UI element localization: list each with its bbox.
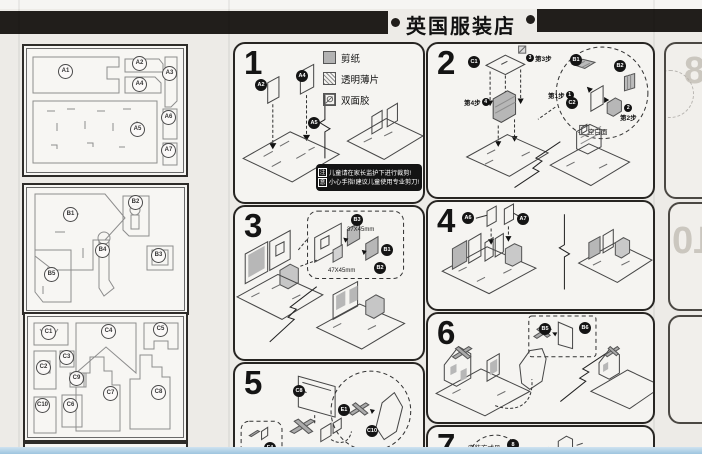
step-2-panel: 2 C1 3 第3步 第4步 4 第1步 1 B1 B2 C2 2 第2步 空白… <box>426 42 655 199</box>
banner-bar-left <box>0 11 388 34</box>
step-number: 6 <box>437 316 455 351</box>
part-badge: C2 <box>566 97 578 109</box>
part-label: C9 <box>69 371 84 386</box>
part-label: A5 <box>130 122 145 137</box>
step-number: 1 <box>244 46 262 81</box>
part-badge: B3 <box>351 214 363 226</box>
step-1-panel: 1 剪纸 透明薄片 双面胶 A2 A4 A5 <box>233 42 425 204</box>
part-badge: C10 <box>366 425 378 437</box>
part-label: A7 <box>161 143 176 158</box>
part-badge: B1 <box>570 54 582 66</box>
part-label: C2 <box>36 360 51 375</box>
folded-page-panel-bottom <box>668 315 702 424</box>
step-dot: 3 <box>526 54 534 62</box>
part-badge: B2 <box>614 60 626 72</box>
double-sided-tape-icon <box>323 93 336 106</box>
step-6-panel: 6 B5 B6 <box>426 312 655 424</box>
part-badge: A4 <box>296 70 308 82</box>
banner-dot-left <box>391 18 400 27</box>
step-text: 第1步 <box>548 90 565 100</box>
legend: 剪纸 透明薄片 双面胶 <box>323 47 379 110</box>
part-badge: B2 <box>374 262 386 274</box>
step-dot: 4 <box>482 98 490 106</box>
step-4-panel: 4 A6 A7 <box>426 200 655 311</box>
warning-tag: 注 意 <box>318 168 327 187</box>
step-3-panel: 3 B3 37X45mm B1 B2 47X45mm <box>233 205 425 361</box>
legend-row-transparent-film: 透明薄片 <box>323 68 379 89</box>
legend-row-double-sided-tape: 双面胶 <box>323 89 379 110</box>
part-badge: A5 <box>308 117 320 129</box>
step-5-panel: 5 C8 E1 C10 F4 <box>233 362 425 454</box>
page-title: 英国服装店 <box>406 10 516 39</box>
ghost-page-number: 8 <box>684 50 702 93</box>
parts-sheet-a: A1 A2 A3 A4 A5 A6 A7 <box>22 44 188 177</box>
legend-label: 剪纸 <box>341 51 360 65</box>
step-annotation: 第4步 4 <box>464 97 490 107</box>
parts-sheet-b: B1 B2 B3 B4 B5 <box>22 183 189 315</box>
step-annotation: 2 第2步 <box>620 104 637 122</box>
part-label: A3 <box>162 66 177 81</box>
instruction-sheet-photo: 英国服装店 A1 A2 A3 A4 A5 A6 A7 <box>0 0 702 454</box>
step-text: 第3步 <box>535 53 552 63</box>
part-label: C10 <box>35 398 50 413</box>
part-label: B3 <box>151 248 166 263</box>
part-label: B1 <box>63 207 78 222</box>
part-label: C5 <box>153 322 168 337</box>
part-label: B4 <box>95 243 110 258</box>
photo-bottom-edge <box>0 447 702 454</box>
sheet-a-part-outlines <box>27 49 183 172</box>
cut-paper-icon <box>323 51 336 64</box>
part-badge: A6 <box>462 212 474 224</box>
part-label: A2 <box>132 56 147 71</box>
part-label: B5 <box>44 267 59 282</box>
transparent-film-icon <box>323 72 336 85</box>
part-badge: C1 <box>468 56 480 68</box>
part-badge: C8 <box>293 385 305 397</box>
step-3-diagram <box>235 207 423 358</box>
folded-page-panel-8: 8 <box>664 42 702 199</box>
part-badge: B1 <box>381 244 393 256</box>
part-badge: E1 <box>338 404 350 416</box>
part-label: C3 <box>59 350 74 365</box>
step-number: 2 <box>437 46 455 81</box>
paper-top-margin <box>0 0 702 9</box>
measurement-label: 37X45mm <box>347 227 374 233</box>
legend-label: 双面胶 <box>341 93 370 107</box>
warning-line-2: 小心手指!建议儿童使用专业剪刀! <box>329 178 419 187</box>
legend-label: 透明薄片 <box>341 72 379 86</box>
part-label: C4 <box>101 324 116 339</box>
part-label: B2 <box>128 195 143 210</box>
step-number: 4 <box>437 204 455 239</box>
part-label: C1 <box>41 325 56 340</box>
paper-crease-left <box>18 0 20 454</box>
blank-side-note: 空白面 <box>588 126 608 136</box>
part-label: A4 <box>132 77 147 92</box>
legend-row-cut-paper: 剪纸 <box>323 47 379 68</box>
parts-sheet-c: C1 C2 C3 C4 C5 C6 C7 C8 C9 C10 <box>23 312 188 442</box>
ghost-page-number: 10 <box>672 220 702 263</box>
step-number: 5 <box>244 366 262 401</box>
step-number: 3 <box>244 209 262 244</box>
step-annotation: 3 第3步 <box>526 53 552 63</box>
measurement-label: 47X45mm <box>328 268 355 274</box>
part-badge: A7 <box>517 213 529 225</box>
part-label: A6 <box>161 110 176 125</box>
part-label: A1 <box>58 64 73 79</box>
safety-warning: 注 意 儿童请在家长监护下进行裁剪! 小心手指!建议儿童使用专业剪刀! <box>316 164 422 191</box>
part-label: C7 <box>103 386 118 401</box>
warning-tag-char: 注 <box>318 168 327 177</box>
paper-fold-center <box>228 0 230 454</box>
step-dot: 2 <box>624 104 632 112</box>
part-label: C8 <box>151 385 166 400</box>
part-label: C6 <box>63 398 78 413</box>
part-badge: B6 <box>579 322 591 334</box>
step-text: 第2步 <box>620 112 637 122</box>
banner-bar-right <box>537 9 702 32</box>
warning-tag-char: 意 <box>318 178 327 187</box>
part-badge: B5 <box>539 323 551 335</box>
warning-line-1: 儿童请在家长监护下进行裁剪! <box>329 169 419 178</box>
step-text: 第4步 <box>464 97 481 107</box>
folded-page-panel-10: 10 <box>668 202 702 311</box>
warning-text: 儿童请在家长监护下进行裁剪! 小心手指!建议儿童使用专业剪刀! <box>329 169 419 187</box>
part-badge: A2 <box>255 79 267 91</box>
step-5-diagram <box>235 364 423 454</box>
banner-dot-right <box>526 15 535 24</box>
